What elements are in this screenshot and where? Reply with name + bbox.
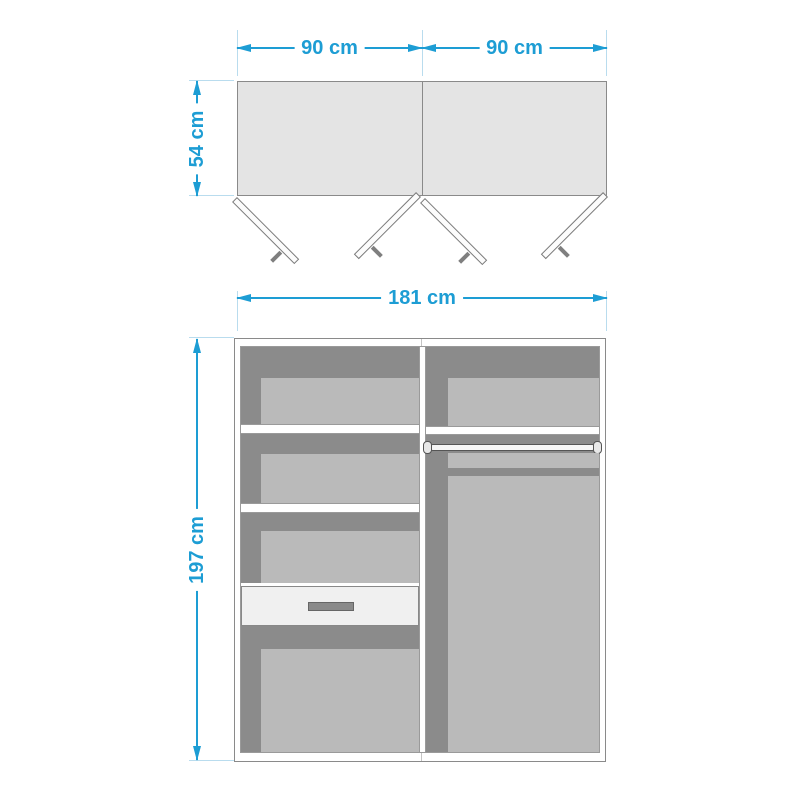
dim-height-label: 197 cm (186, 509, 208, 591)
compartment-3 (261, 531, 419, 583)
wardrobe-interior (240, 346, 600, 753)
top-panel (237, 81, 607, 196)
top-joint (421, 339, 422, 346)
dim-width-right-label: 90 cm (479, 37, 550, 59)
drawer (241, 586, 419, 626)
arrow-left-icon (236, 44, 251, 52)
arrow-right-icon (593, 294, 608, 302)
rail-back-band (448, 453, 599, 468)
dim-width-label: 181 cm (381, 287, 463, 309)
compartment-1 (261, 378, 419, 424)
top-view: 90 cm 90 cm 54 cm (0, 0, 800, 280)
arrow-left-icon (236, 294, 251, 302)
compartment-4 (261, 649, 419, 752)
shelf-right (426, 426, 599, 435)
door-handle (558, 246, 570, 258)
dim-depth: 54 cm (196, 81, 198, 196)
extension-line-left (237, 30, 238, 76)
arrow-down-icon (193, 746, 201, 761)
wardrobe-dimension-diagram: 90 cm 90 cm 54 cm (0, 0, 800, 800)
door-handle (371, 246, 383, 258)
hanging-compartment (448, 476, 599, 752)
bottom-joint (421, 753, 422, 761)
door-handle (270, 251, 282, 263)
arrow-left-icon (421, 44, 436, 52)
shelf-2 (241, 503, 419, 513)
door-open-1 (232, 197, 299, 264)
arrow-right-icon (593, 44, 608, 52)
compartment-2 (261, 454, 419, 503)
drawer-handle (308, 602, 354, 611)
center-divider (419, 347, 426, 752)
dim-width-right: 90 cm (422, 47, 607, 49)
extension-line-center (422, 30, 423, 76)
arrow-up-icon (193, 338, 201, 353)
wardrobe-frame (234, 338, 606, 762)
dim-width: 181 cm (237, 297, 607, 299)
dim-width-left: 90 cm (237, 47, 422, 49)
rail-end-cap-left (423, 441, 432, 454)
shelf-1 (241, 424, 419, 434)
dim-height: 197 cm (196, 339, 198, 760)
dim-width-left-label: 90 cm (294, 37, 365, 59)
arrow-down-icon (193, 182, 201, 197)
door-open-4 (541, 192, 608, 259)
extension-line-right (606, 30, 607, 76)
door-open-2 (354, 192, 421, 259)
door-open-3 (420, 198, 487, 265)
door-handle (458, 252, 470, 264)
right-section (426, 347, 599, 752)
rail-bar (430, 444, 595, 451)
left-section (241, 347, 419, 752)
top-panel-divider (422, 82, 423, 195)
front-view: 181 cm 197 cm (0, 280, 800, 800)
dim-depth-label: 54 cm (186, 103, 208, 174)
compartment-top-right (448, 378, 599, 426)
arrow-up-icon (193, 80, 201, 95)
